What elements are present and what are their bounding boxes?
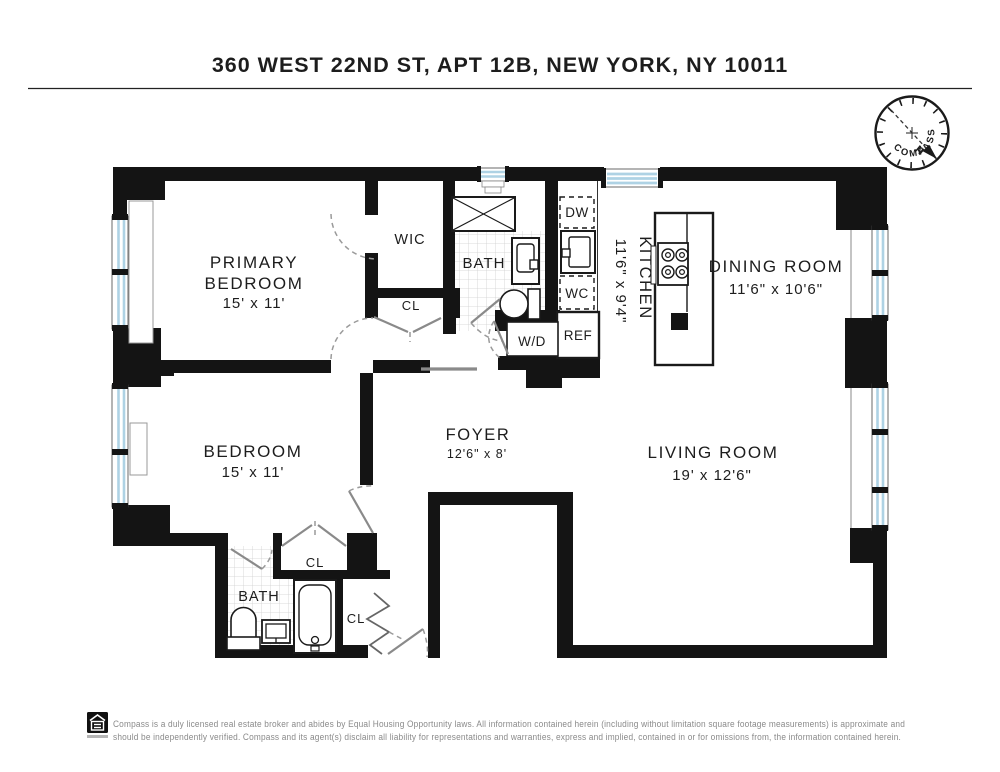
toilet-upper-bath-icon — [500, 289, 540, 319]
window-living — [872, 382, 888, 531]
window-primary-bedroom — [112, 214, 128, 331]
label-bath-upper: BATH — [463, 255, 506, 272]
entry-door — [388, 629, 428, 657]
dims-bedroom: 15' x 11' — [222, 464, 285, 481]
dims-primary-bedroom: 15' x 11' — [223, 295, 286, 312]
wic-door-arc — [331, 214, 376, 259]
window-kitchen — [601, 168, 663, 188]
dims-living-room: 19' x 12'6" — [672, 467, 752, 484]
window-bedroom — [112, 383, 128, 509]
radiator-bedroom — [130, 423, 147, 475]
label-bath-lower: BATH — [238, 589, 280, 605]
label-closet-entry: CL — [347, 611, 366, 626]
compass-icon: COMPASS N — [876, 97, 949, 170]
kitchen-island-icon — [651, 213, 713, 365]
page-title: 360 WEST 22ND ST, APT 12B, NEW YORK, NY … — [212, 53, 788, 77]
label-refrigerator: REF — [564, 328, 593, 343]
floorplan-svg: 360 WEST 22ND ST, APT 12B, NEW YORK, NY … — [0, 0, 1000, 772]
toilet-lower-bath-icon — [227, 608, 260, 651]
label-washer-dryer: W/D — [518, 334, 546, 349]
label-closet-bedroom: CL — [306, 555, 325, 570]
bedroom-door — [349, 486, 373, 533]
label-dining-room: DINING ROOM — [709, 257, 844, 276]
footer: Compass is a duly licensed real estate b… — [87, 712, 905, 742]
dims-dining-room: 11'6" x 10'6" — [729, 281, 823, 298]
label-closet-hall: CL — [402, 298, 421, 313]
label-dishwasher: DW — [565, 205, 589, 220]
radiator-primary — [129, 201, 153, 343]
disclaimer-line-2: should be independently verified. Compas… — [113, 732, 901, 742]
equal-housing-logo — [87, 712, 108, 738]
disclaimer-line-1: Compass is a duly licensed real estate b… — [113, 719, 905, 729]
label-kitchen: KITCHEN — [636, 236, 654, 320]
dims-foyer: 12'6" x 8' — [447, 447, 507, 461]
label-bedroom: BEDROOM — [203, 442, 302, 461]
label-water-closet: WC — [565, 286, 589, 301]
sink-lower-bath-icon — [262, 620, 290, 643]
island-sink-icon — [671, 313, 688, 330]
window-bath-small — [477, 166, 509, 193]
label-primary-bedroom-2: BEDROOM — [204, 274, 303, 293]
shower-icon — [452, 197, 515, 231]
entry-closet-accordion-door — [367, 593, 402, 654]
label-primary-bedroom-1: PRIMARY — [210, 253, 298, 272]
header: 360 WEST 22ND ST, APT 12B, NEW YORK, NY … — [28, 53, 972, 89]
label-wic: WIC — [394, 232, 425, 248]
label-foyer: FOYER — [446, 426, 511, 444]
dims-kitchen: 11'6" x 9'4" — [612, 239, 629, 324]
bathtub-icon — [294, 580, 336, 653]
floorplan-page: 360 WEST 22ND ST, APT 12B, NEW YORK, NY … — [0, 0, 1000, 772]
primary-bedroom-door-arc — [331, 318, 373, 359]
kitchen-sink-icon — [561, 231, 595, 273]
bedroom-closet-bifold-door — [282, 521, 346, 546]
hall-closet-bifold-door — [374, 317, 441, 342]
window-dining — [872, 224, 888, 321]
label-living-room: LIVING ROOM — [648, 443, 779, 462]
sink-upper-bath-icon — [512, 238, 539, 284]
